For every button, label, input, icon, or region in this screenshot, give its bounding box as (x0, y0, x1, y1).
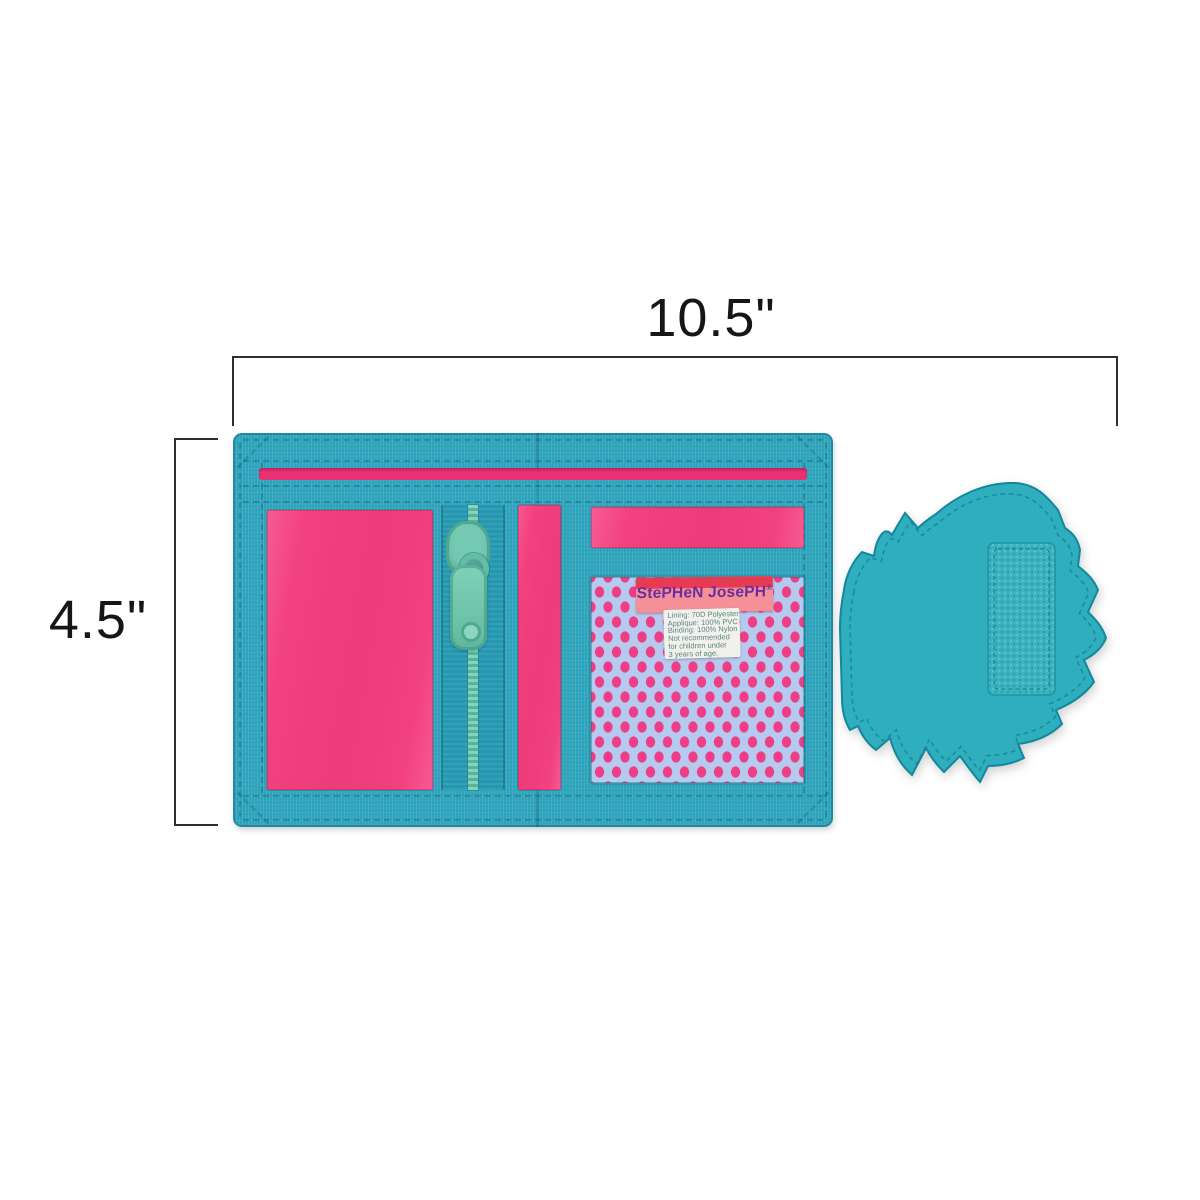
flap-outline (840, 483, 1106, 782)
stitch-line (243, 439, 823, 441)
brand-tag-text: StePHeN JosePH® (636, 583, 774, 603)
width-dimension-tick-left (232, 356, 234, 426)
stitch-line (243, 460, 823, 462)
divider-strip (518, 505, 561, 790)
card-slot-panel (591, 507, 804, 548)
registered-mark: ® (766, 583, 772, 592)
height-dimension-label: 4.5" (18, 592, 178, 648)
care-label-line: 3 years of age. (668, 648, 740, 658)
bill-compartment-slot (259, 468, 807, 480)
height-dimension-line (174, 438, 176, 826)
width-dimension-label: 10.5" (561, 290, 861, 346)
character-flap (832, 468, 1122, 798)
brand-name: StePHeN JosePH (636, 583, 766, 602)
stitch-line (825, 443, 827, 817)
stitch-line (239, 443, 241, 817)
wallet-body: StePHeN JosePH® Lining: 70D Polyester Ap… (233, 433, 833, 827)
brand-tag: StePHeN JosePH® (636, 576, 773, 613)
left-pocket-panel (267, 510, 433, 790)
height-dimension-tick-top (174, 438, 218, 440)
velcro-strip (988, 543, 1055, 695)
product-image: 10.5" 4.5" (0, 0, 1200, 1200)
stitch-line (243, 819, 823, 821)
stitch-line (261, 463, 263, 793)
height-dimension-tick-bottom (174, 824, 218, 826)
stitch-line (243, 795, 823, 797)
care-label: Lining: 70D Polyester Applique: 100% PVC… (663, 608, 740, 659)
stitch-line (243, 501, 823, 503)
width-dimension-tick-right (1116, 356, 1118, 426)
zipper-pull-icon (450, 565, 487, 650)
zipper (441, 505, 505, 790)
zipper-pull-hole (461, 622, 481, 642)
stitch-line (243, 485, 823, 487)
width-dimension-line (232, 356, 1118, 358)
